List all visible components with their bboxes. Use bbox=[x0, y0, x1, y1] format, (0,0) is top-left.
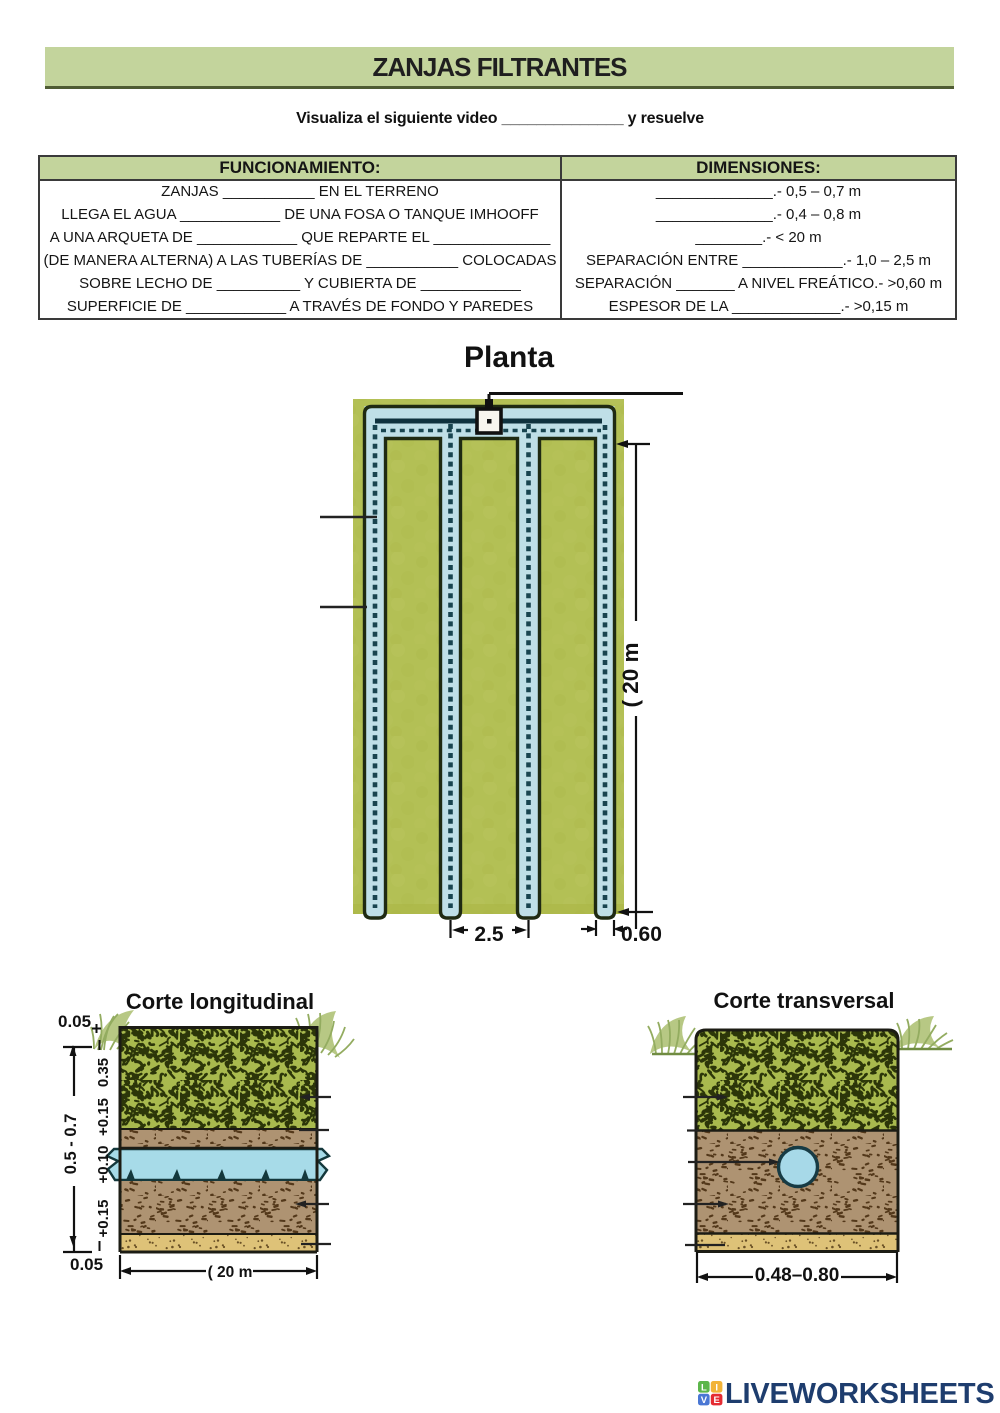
svg-text:+0.15: +0.15 bbox=[95, 1200, 112, 1238]
svg-text:0.60: 0.60 bbox=[621, 923, 662, 946]
svg-text:0.48–0.80: 0.48–0.80 bbox=[755, 1265, 840, 1286]
svg-text:I: I bbox=[715, 1382, 718, 1393]
svg-text:E: E bbox=[714, 1395, 720, 1406]
svg-text:Corte longitudinal: Corte longitudinal bbox=[126, 989, 314, 1014]
svg-text:+0.10: +0.10 bbox=[95, 1146, 112, 1184]
svg-text:0.5 - 0.7: 0.5 - 0.7 bbox=[62, 1114, 80, 1175]
svg-text:( 20 m: ( 20 m bbox=[208, 1264, 253, 1281]
svg-text:0.05: 0.05 bbox=[70, 1255, 103, 1274]
svg-text:Corte transversal: Corte transversal bbox=[714, 988, 895, 1013]
svg-text:0.05: 0.05 bbox=[58, 1012, 91, 1031]
svg-text:LIVEWORKSHEETS: LIVEWORKSHEETS bbox=[725, 1378, 995, 1410]
svg-text:2.5: 2.5 bbox=[474, 923, 504, 946]
svg-text:( 20 m: ( 20 m bbox=[618, 642, 643, 707]
svg-text:L: L bbox=[701, 1382, 707, 1393]
svg-text:V: V bbox=[701, 1395, 708, 1406]
svg-text:+0.15: +0.15 bbox=[95, 1098, 112, 1136]
svg-text:0.35: 0.35 bbox=[95, 1058, 112, 1087]
